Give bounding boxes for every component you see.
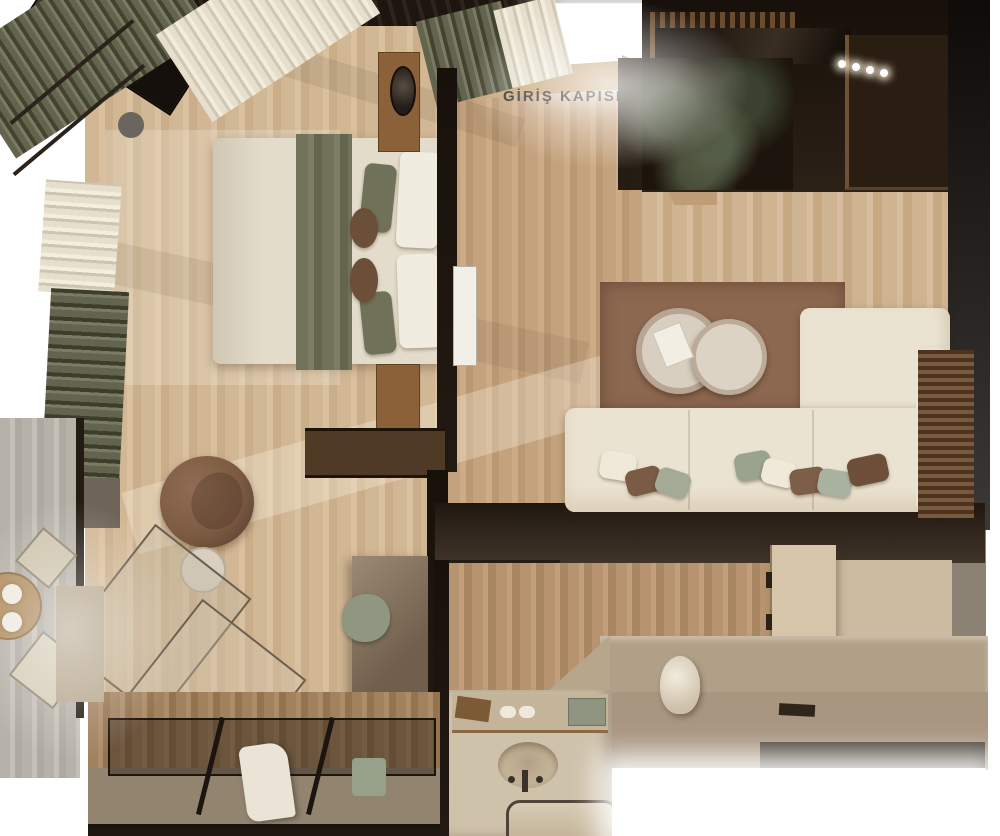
nightstand	[376, 364, 420, 436]
minibar-spot-light	[838, 60, 846, 68]
floor-plan-render: GİRİŞ KAPISI	[0, 0, 1000, 836]
coffee-table-round	[691, 319, 767, 395]
closet-side-pillar	[56, 586, 104, 702]
door-hinge	[766, 614, 772, 630]
door-hinge	[766, 572, 772, 588]
faucet-handle	[508, 776, 515, 783]
bed-cushion-brown	[350, 208, 378, 248]
bed-pillow-white	[396, 151, 443, 249]
bed-bench	[305, 428, 445, 478]
vanity-wood-box	[455, 696, 492, 723]
bed-duvet-fold	[213, 138, 261, 364]
closet-bottom-wall	[88, 824, 440, 836]
bathroom-stone-ledge-upper	[600, 636, 988, 698]
sofa-seat-seam	[812, 410, 814, 510]
tv-stand-base	[118, 112, 144, 138]
vase	[660, 656, 700, 714]
faucet-handle	[536, 776, 543, 783]
minibar-spot-light	[852, 63, 860, 71]
bed-pillow-white	[396, 253, 441, 348]
minibar-spot-light	[866, 66, 874, 74]
minibar-spot-light	[880, 69, 888, 77]
south-wall-band	[435, 503, 985, 563]
bed-cushion-brown	[350, 258, 378, 302]
partition-light-panel	[453, 266, 477, 366]
slatted-wood-ledge	[918, 350, 974, 518]
folded-towels-sage	[568, 698, 606, 726]
remote-tray	[779, 703, 816, 717]
side-curtain-cream	[38, 179, 122, 296]
desk-chair	[342, 594, 390, 642]
hanging-towel-sage	[352, 758, 386, 796]
minibar-cabinet	[845, 35, 957, 190]
rolled-towel	[500, 706, 516, 718]
sofa-seat-seam	[688, 410, 690, 510]
vanity-mirror	[506, 800, 618, 836]
bathtub-light-cutout	[612, 768, 986, 836]
sink-faucet	[522, 770, 528, 792]
bed-throw-blanket	[296, 134, 352, 370]
balcony-stool	[2, 584, 22, 604]
hanging-plant	[618, 58, 793, 190]
entrance-label: GİRİŞ KAPISI	[503, 88, 622, 105]
rolled-towel	[519, 706, 535, 718]
pendant-lamp	[390, 66, 416, 116]
south-edge-wall	[760, 742, 985, 770]
vanity-sink	[498, 742, 558, 788]
balcony-stool	[2, 612, 22, 632]
